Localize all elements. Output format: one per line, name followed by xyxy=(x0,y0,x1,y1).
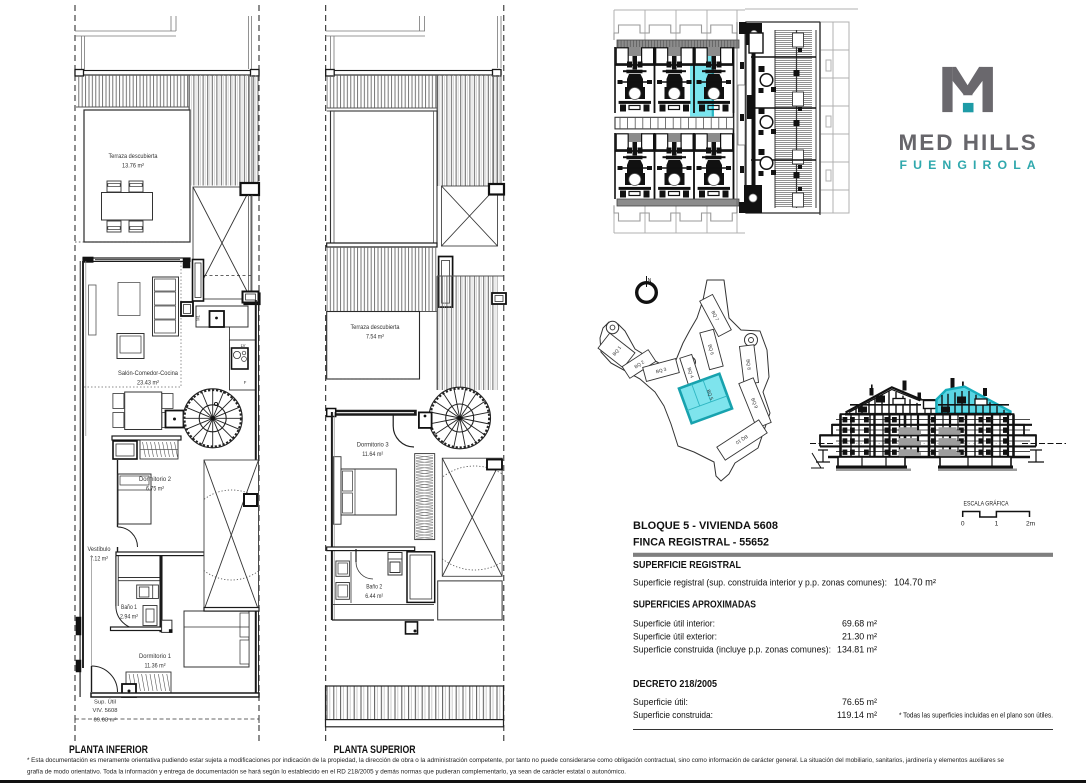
svg-text:134.81 m²: 134.81 m² xyxy=(837,644,878,655)
svg-text:SUPERFICIE REGISTRAL: SUPERFICIE REGISTRAL xyxy=(633,560,741,571)
svg-text:grafía de modo orientativo. To: grafía de modo orientativo. Toda la info… xyxy=(27,769,626,776)
svg-text:13.76 m²: 13.76 m² xyxy=(122,163,145,170)
svg-text:Superficie construida:: Superficie construida: xyxy=(633,710,713,721)
svg-text:76.65 m²: 76.65 m² xyxy=(842,697,878,708)
svg-text:Superficie útil exterior:: Superficie útil exterior: xyxy=(633,631,717,642)
svg-text:11.64 m²: 11.64 m² xyxy=(362,451,383,458)
svg-text:F: F xyxy=(244,380,247,385)
svg-text:Baño 1: Baño 1 xyxy=(121,604,137,611)
svg-text:0: 0 xyxy=(961,521,965,528)
svg-text:PLANTA SUPERIOR: PLANTA SUPERIOR xyxy=(334,744,416,756)
svg-text:1: 1 xyxy=(995,521,999,528)
svg-text:Dormitorio 1: Dormitorio 1 xyxy=(139,653,171,660)
svg-text:2.94 m²: 2.94 m² xyxy=(120,614,138,621)
svg-text:VIV. 5608: VIV. 5608 xyxy=(93,708,118,714)
svg-text:* Todas las superficies inclui: * Todas las superficies incluidas en el … xyxy=(899,711,1053,720)
svg-text:7.54 m²: 7.54 m² xyxy=(366,334,385,341)
svg-text:Baño 2: Baño 2 xyxy=(366,584,382,591)
svg-text:N: N xyxy=(648,278,652,284)
svg-text:69.68 m²: 69.68 m² xyxy=(94,718,117,724)
svg-text:BLOQUE 5 - VIVIENDA 5608: BLOQUE 5 - VIVIENDA 5608 xyxy=(633,520,778,532)
svg-text:Superficie útil interior:: Superficie útil interior: xyxy=(633,618,715,629)
svg-text:Dormitorio 3: Dormitorio 3 xyxy=(357,442,389,449)
svg-text:Dormitorio 2: Dormitorio 2 xyxy=(139,476,171,483)
svg-text:M1: M1 xyxy=(196,314,201,320)
svg-text:* Esta documentación es merame: * Esta documentación es meramente orient… xyxy=(27,757,1004,764)
svg-text:119.14 m²: 119.14 m² xyxy=(837,710,878,721)
svg-text:Terraza descubierta: Terraza descubierta xyxy=(109,153,158,160)
svg-text:Vestíbulo: Vestíbulo xyxy=(88,546,111,553)
svg-text:7.12 m²: 7.12 m² xyxy=(90,556,108,563)
svg-text:104.70 m²: 104.70 m² xyxy=(894,578,937,589)
svg-text:FUENGIROLA: FUENGIROLA xyxy=(900,158,1042,172)
svg-text:21.30 m²: 21.30 m² xyxy=(842,631,878,642)
svg-text:Superficie construida (incluye: Superficie construida (incluye p.p. zona… xyxy=(633,644,831,655)
svg-text:Superficie útil:: Superficie útil: xyxy=(633,697,688,708)
svg-text:SUPERFICIES APROXIMADAS: SUPERFICIES APROXIMADAS xyxy=(633,600,756,611)
svg-text:ESCALA GRÁFICA: ESCALA GRÁFICA xyxy=(964,499,1009,508)
svg-text:69.68 m²: 69.68 m² xyxy=(842,618,878,629)
svg-text:6.75 m²: 6.75 m² xyxy=(146,486,164,493)
svg-text:MED HILLS: MED HILLS xyxy=(899,130,1038,155)
svg-text:Sup. Útil: Sup. Útil xyxy=(94,699,116,706)
svg-text:Salón-Comedor-Cocina: Salón-Comedor-Cocina xyxy=(118,370,178,377)
svg-text:11.36 m²: 11.36 m² xyxy=(145,663,166,670)
svg-text:Superficie registral (sup. con: Superficie registral (sup. construida in… xyxy=(633,578,887,589)
svg-text:PLANTA INFERIOR: PLANTA INFERIOR xyxy=(69,744,148,756)
svg-text:2m: 2m xyxy=(1026,521,1036,528)
svg-text:6.44 m²: 6.44 m² xyxy=(365,593,383,600)
svg-text:Terraza descubierta: Terraza descubierta xyxy=(351,324,400,331)
svg-text:DECRETO 218/2005: DECRETO 218/2005 xyxy=(633,679,717,690)
svg-text:23.43 m²: 23.43 m² xyxy=(137,380,160,387)
svg-text:FINCA REGISTRAL - 55652: FINCA REGISTRAL - 55652 xyxy=(633,537,769,549)
